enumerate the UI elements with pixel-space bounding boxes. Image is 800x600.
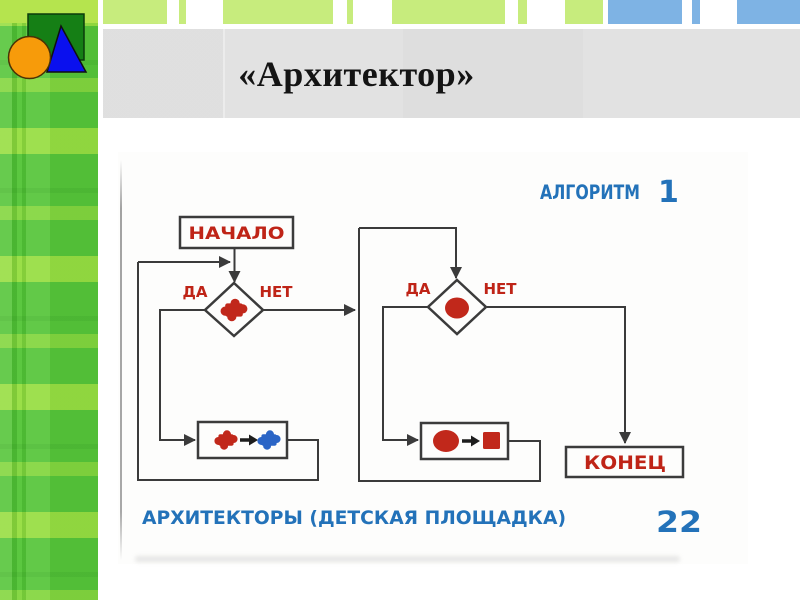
arrow-decision2-yes-to-action2: [383, 307, 428, 440]
algorithm-heading: АЛГОРИТМ 1: [540, 175, 679, 210]
red-square-icon: [483, 432, 500, 449]
end-label: КОНЕЦ: [584, 452, 666, 474]
arrow-decision1-yes-to-action1: [160, 310, 205, 440]
worksheet-caption: АРХИТЕКТОРЫ (ДЕТСКАЯ ПЛОЩАДКА): [142, 507, 566, 529]
page-number: 22: [656, 505, 702, 539]
decision2-no-label: НЕТ: [483, 280, 517, 298]
algorithm-heading-word: АЛГОРИТМ: [540, 181, 640, 204]
start-label: НАЧАЛО: [189, 224, 285, 244]
decision2-yes-label: ДА: [406, 280, 431, 298]
algorithm-heading-number: 1: [658, 175, 679, 210]
red-circle-icon: [433, 430, 459, 452]
decision1-no-label: НЕТ: [259, 283, 293, 301]
flowchart: НАЧАЛО ДА НЕТ ДА НЕТ КОНЕЦ АЛГОРИТМ 1 АР: [0, 0, 800, 600]
decision1-yes-label: ДА: [183, 283, 208, 301]
red-circle-icon: [445, 298, 469, 319]
arrow-into-decision2: [359, 228, 456, 278]
slide: «Архитектор»: [0, 0, 800, 600]
